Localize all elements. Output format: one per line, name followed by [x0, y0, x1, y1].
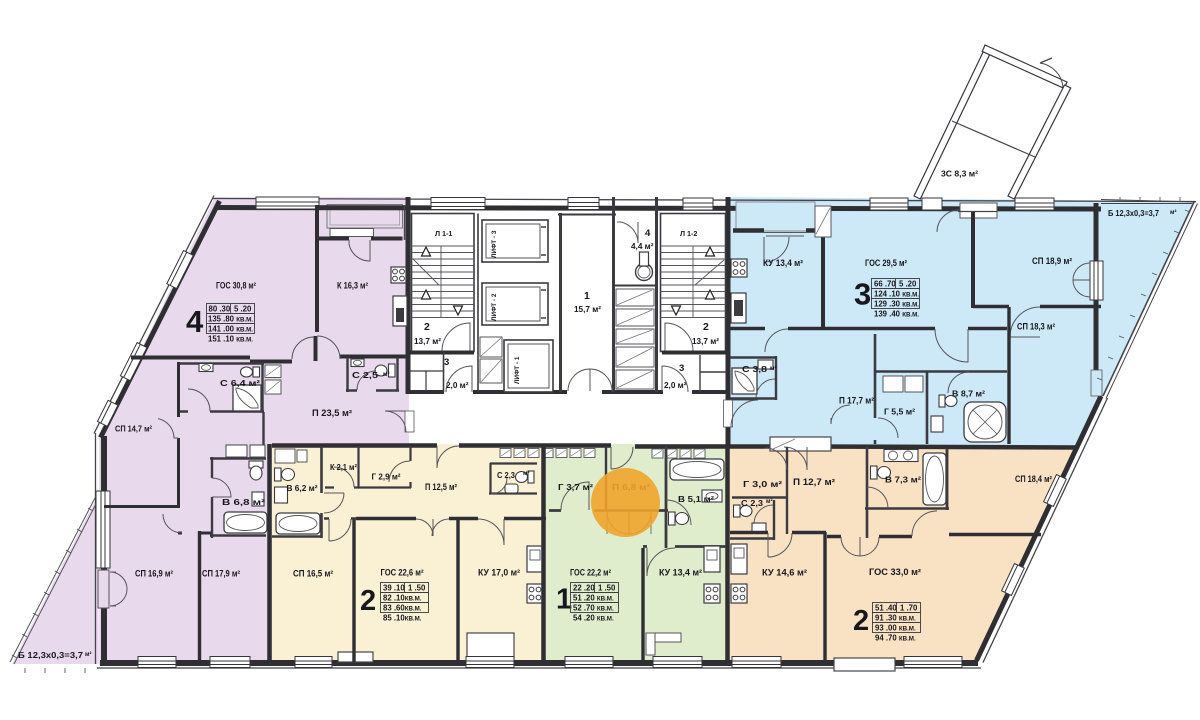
svg-text:Г 3,7 м²: Г 3,7 м²: [558, 483, 593, 492]
svg-text:3: 3: [679, 363, 684, 374]
svg-text:В 6,2 м²: В 6,2 м²: [287, 484, 318, 493]
svg-text:СП 18,4 м²: СП 18,4 м²: [1015, 474, 1052, 484]
svg-text:39 .10: 39 .10: [383, 584, 405, 593]
svg-text:94 .70 КВ.М.: 94 .70 КВ.М.: [875, 634, 916, 643]
svg-text:ГОС 22,2 м²: ГОС 22,2 м²: [570, 568, 611, 578]
svg-text:К 16,3 м²: К 16,3 м²: [337, 281, 368, 291]
svg-text:4,4 м²: 4,4 м²: [631, 242, 654, 251]
svg-text:СП 18,3 м²: СП 18,3 м²: [1017, 322, 1055, 332]
svg-text:151 .10 КВ.М.: 151 .10 КВ.М.: [208, 335, 253, 344]
svg-text:С 6,4 м²: С 6,4 м²: [220, 379, 260, 388]
svg-text:54 .20 КВ.М.: 54 .20 КВ.М.: [573, 614, 614, 623]
svg-text:5 .20: 5 .20: [234, 305, 252, 314]
svg-text:СП 18,9 м²: СП 18,9 м²: [1032, 256, 1072, 266]
svg-text:ГОС 22,6 м²: ГОС 22,6 м²: [381, 568, 424, 578]
svg-text:3: 3: [854, 277, 871, 312]
svg-text:м²: м²: [1170, 209, 1176, 216]
svg-text:1 .70: 1 .70: [900, 604, 918, 613]
svg-text:Л 1-2: Л 1-2: [680, 229, 697, 238]
svg-text:Г 2,9 м²: Г 2,9 м²: [372, 473, 401, 482]
svg-text:м²: м²: [85, 651, 91, 658]
svg-text:ГОС 33,0 м²: ГОС 33,0 м²: [869, 567, 921, 577]
svg-text:80 .30: 80 .30: [209, 305, 231, 314]
svg-text:СП 14,7 м²: СП 14,7 м²: [115, 425, 152, 434]
svg-text:3С 8,3 м²: 3С 8,3 м²: [941, 170, 978, 179]
svg-text:В 7,3 м²: В 7,3 м²: [885, 476, 921, 485]
svg-text:82 .10КВ.М.: 82 .10КВ.М.: [383, 594, 422, 603]
svg-text:5 .20: 5 .20: [899, 280, 917, 289]
svg-text:83 .60КВ.М.: 83 .60КВ.М.: [383, 604, 422, 613]
svg-text:51 .20 КВ.М.: 51 .20 КВ.М.: [573, 594, 614, 603]
svg-text:КУ 13,4 м²: КУ 13,4 м²: [659, 568, 702, 578]
svg-text:СП 16,5 м²: СП 16,5 м²: [293, 569, 333, 579]
svg-text:3: 3: [444, 357, 449, 368]
svg-text:135 .80 КВ.М.: 135 .80 КВ.М.: [208, 315, 253, 324]
svg-text:51 .40: 51 .40: [875, 604, 897, 613]
svg-text:Г 5,5 м²: Г 5,5 м²: [884, 408, 915, 417]
svg-text:ГОС 30,8 м²: ГОС 30,8 м²: [216, 281, 256, 291]
svg-text:66 .70: 66 .70: [874, 280, 896, 289]
svg-text:С 2,3: С 2,3: [497, 471, 515, 480]
svg-text:КУ 13,4 м²: КУ 13,4 м²: [763, 258, 803, 268]
svg-text:С 3,8: С 3,8: [742, 365, 768, 374]
svg-text:В 5,1 м²: В 5,1 м²: [678, 495, 714, 504]
svg-text:1: 1: [556, 584, 572, 616]
svg-text:139 .40 КВ.М.: 139 .40 КВ.М.: [874, 310, 919, 319]
svg-text:Л 1-1: Л 1-1: [435, 229, 452, 238]
svg-text:ЛИФТ - 3: ЛИФТ - 3: [491, 230, 498, 258]
svg-text:4: 4: [186, 304, 204, 339]
svg-text:м²: м²: [523, 470, 529, 477]
svg-text:2,0 м²: 2,0 м²: [664, 381, 687, 390]
svg-text:85 .10КВ.М.: 85 .10КВ.М.: [383, 614, 422, 623]
svg-text:15,7 м²: 15,7 м²: [574, 305, 601, 314]
svg-text:П 12,7 м²: П 12,7 м²: [793, 477, 835, 487]
svg-text:ЛИФТ - 1: ЛИФТ - 1: [514, 356, 521, 384]
svg-text:1 .50: 1 .50: [408, 584, 426, 593]
svg-text:В 6,8 м²: В 6,8 м²: [222, 498, 265, 507]
svg-text:м²: м²: [770, 365, 776, 372]
svg-text:141 .00 КВ.М.: 141 .00 КВ.М.: [208, 325, 253, 334]
svg-text:КУ 14,6 м²: КУ 14,6 м²: [762, 568, 807, 578]
svg-text:13,7 м²: 13,7 м²: [414, 337, 441, 346]
svg-text:91 .30 КВ.М.: 91 .30 КВ.М.: [875, 614, 916, 623]
svg-text:4: 4: [645, 228, 651, 239]
svg-text:С 2,5: С 2,5: [352, 371, 379, 380]
svg-text:ГОС 29,5 м²: ГОС 29,5 м²: [865, 258, 907, 268]
svg-text:Г 3,0 м²: Г 3,0 м²: [743, 480, 782, 489]
svg-text:м²: м²: [766, 498, 772, 505]
svg-text:П 17,7 м²: П 17,7 м²: [839, 396, 874, 406]
svg-text:К 2,1 м²: К 2,1 м²: [330, 463, 357, 472]
svg-text:93 .00 КВ.М.: 93 .00 КВ.М.: [875, 624, 916, 633]
svg-text:1: 1: [584, 290, 590, 302]
svg-text:2: 2: [853, 605, 869, 637]
svg-text:СП 16,9 м²: СП 16,9 м²: [135, 569, 173, 579]
svg-text:2,0 м²: 2,0 м²: [446, 381, 469, 390]
svg-text:СП 17,9 м²: СП 17,9 м²: [202, 569, 240, 579]
svg-text:м²: м²: [383, 371, 389, 378]
svg-text:52 .70 КВ.М.: 52 .70 КВ.М.: [573, 604, 614, 613]
svg-text:2: 2: [424, 321, 430, 333]
svg-text:129 .30 КВ.М.: 129 .30 КВ.М.: [874, 300, 919, 309]
svg-text:С 2,3: С 2,3: [741, 499, 763, 508]
svg-text:ЛИФТ - 2: ЛИФТ - 2: [491, 293, 498, 321]
svg-text:П 12,5 м²: П 12,5 м²: [425, 482, 457, 492]
svg-text:2: 2: [360, 585, 376, 617]
svg-text:22 .20: 22 .20: [573, 584, 595, 593]
svg-text:124 .10 КВ.М.: 124 .10 КВ.М.: [874, 290, 919, 299]
svg-text:13,7 м²: 13,7 м²: [692, 337, 719, 346]
svg-text:Б 12,3х0,3=3,7: Б 12,3х0,3=3,7: [18, 651, 84, 660]
svg-text:В 8,7 м²: В 8,7 м²: [952, 390, 985, 399]
svg-text:КУ 17,0 м²: КУ 17,0 м²: [478, 568, 520, 578]
svg-text:1 .50: 1 .50: [598, 584, 616, 593]
svg-text:2: 2: [703, 321, 709, 333]
svg-text:П 23,5 м²: П 23,5 м²: [312, 408, 352, 418]
svg-text:Б 12,3х0,3=3,7: Б 12,3х0,3=3,7: [1108, 209, 1159, 218]
